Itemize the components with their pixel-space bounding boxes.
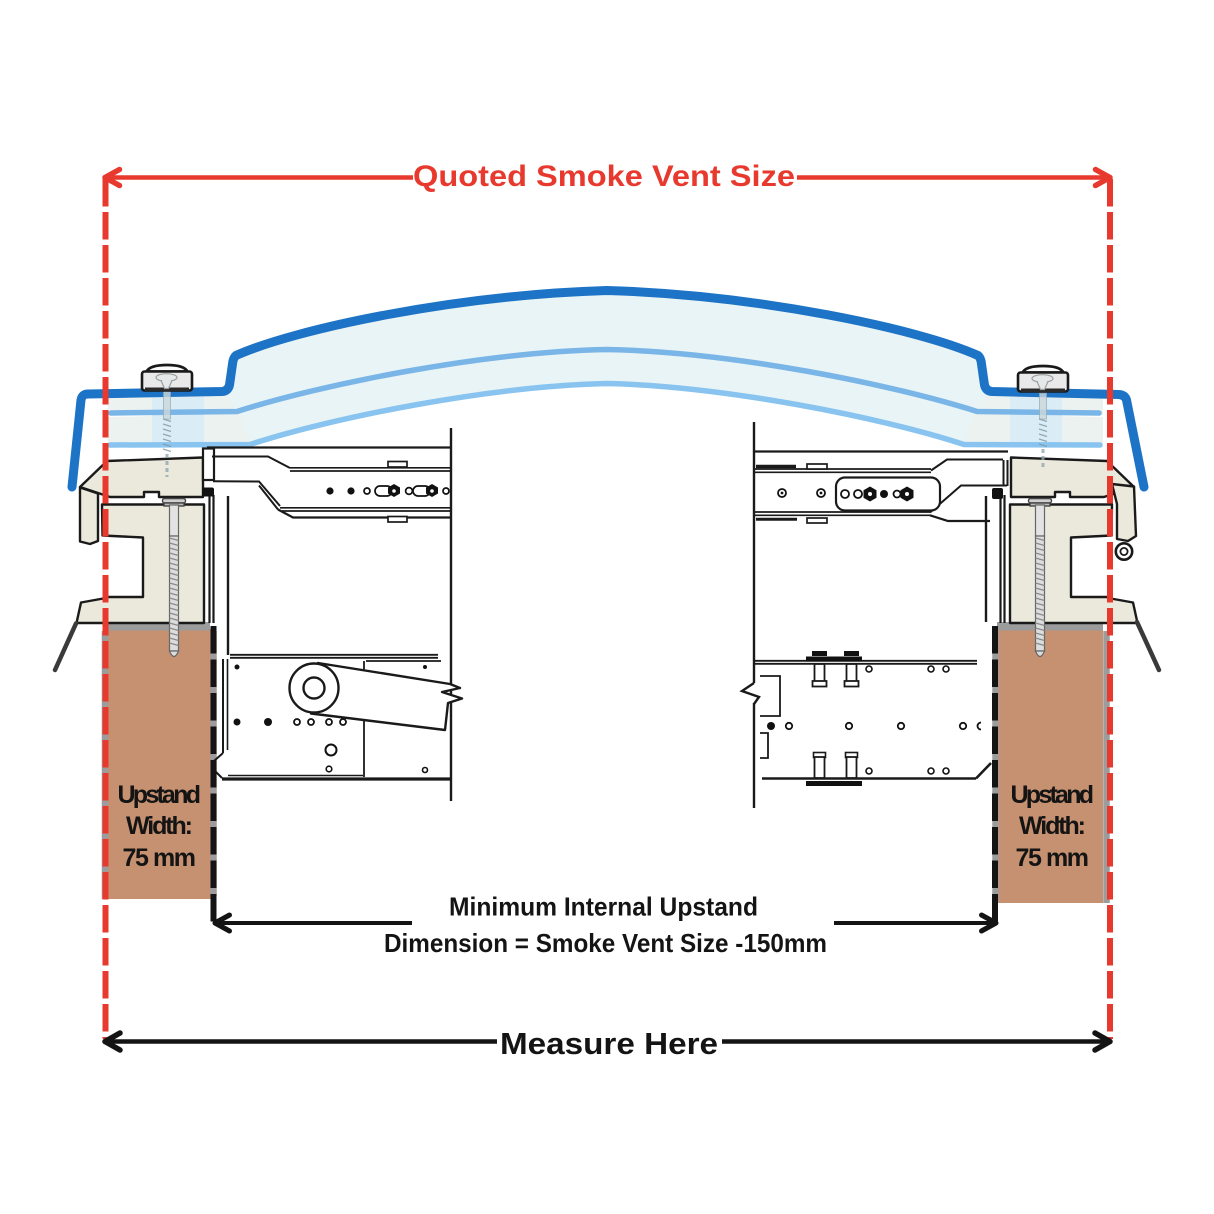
svg-text:Quoted Smoke Vent Size: Quoted Smoke Vent Size bbox=[413, 160, 795, 193]
svg-text:Upstand: Upstand bbox=[1011, 781, 1095, 809]
svg-text:Width:: Width: bbox=[126, 812, 193, 840]
svg-text:Dimension = Smoke Vent Size -1: Dimension = Smoke Vent Size -150mm bbox=[384, 928, 827, 958]
svg-text:75 mm: 75 mm bbox=[1016, 844, 1090, 872]
svg-text:Upstand: Upstand bbox=[118, 781, 202, 809]
svg-text:Measure Here: Measure Here bbox=[500, 1027, 718, 1061]
svg-text:75 mm: 75 mm bbox=[123, 844, 197, 872]
svg-text:Width:: Width: bbox=[1019, 812, 1086, 840]
svg-text:Minimum Internal Upstand: Minimum Internal Upstand bbox=[449, 892, 758, 922]
